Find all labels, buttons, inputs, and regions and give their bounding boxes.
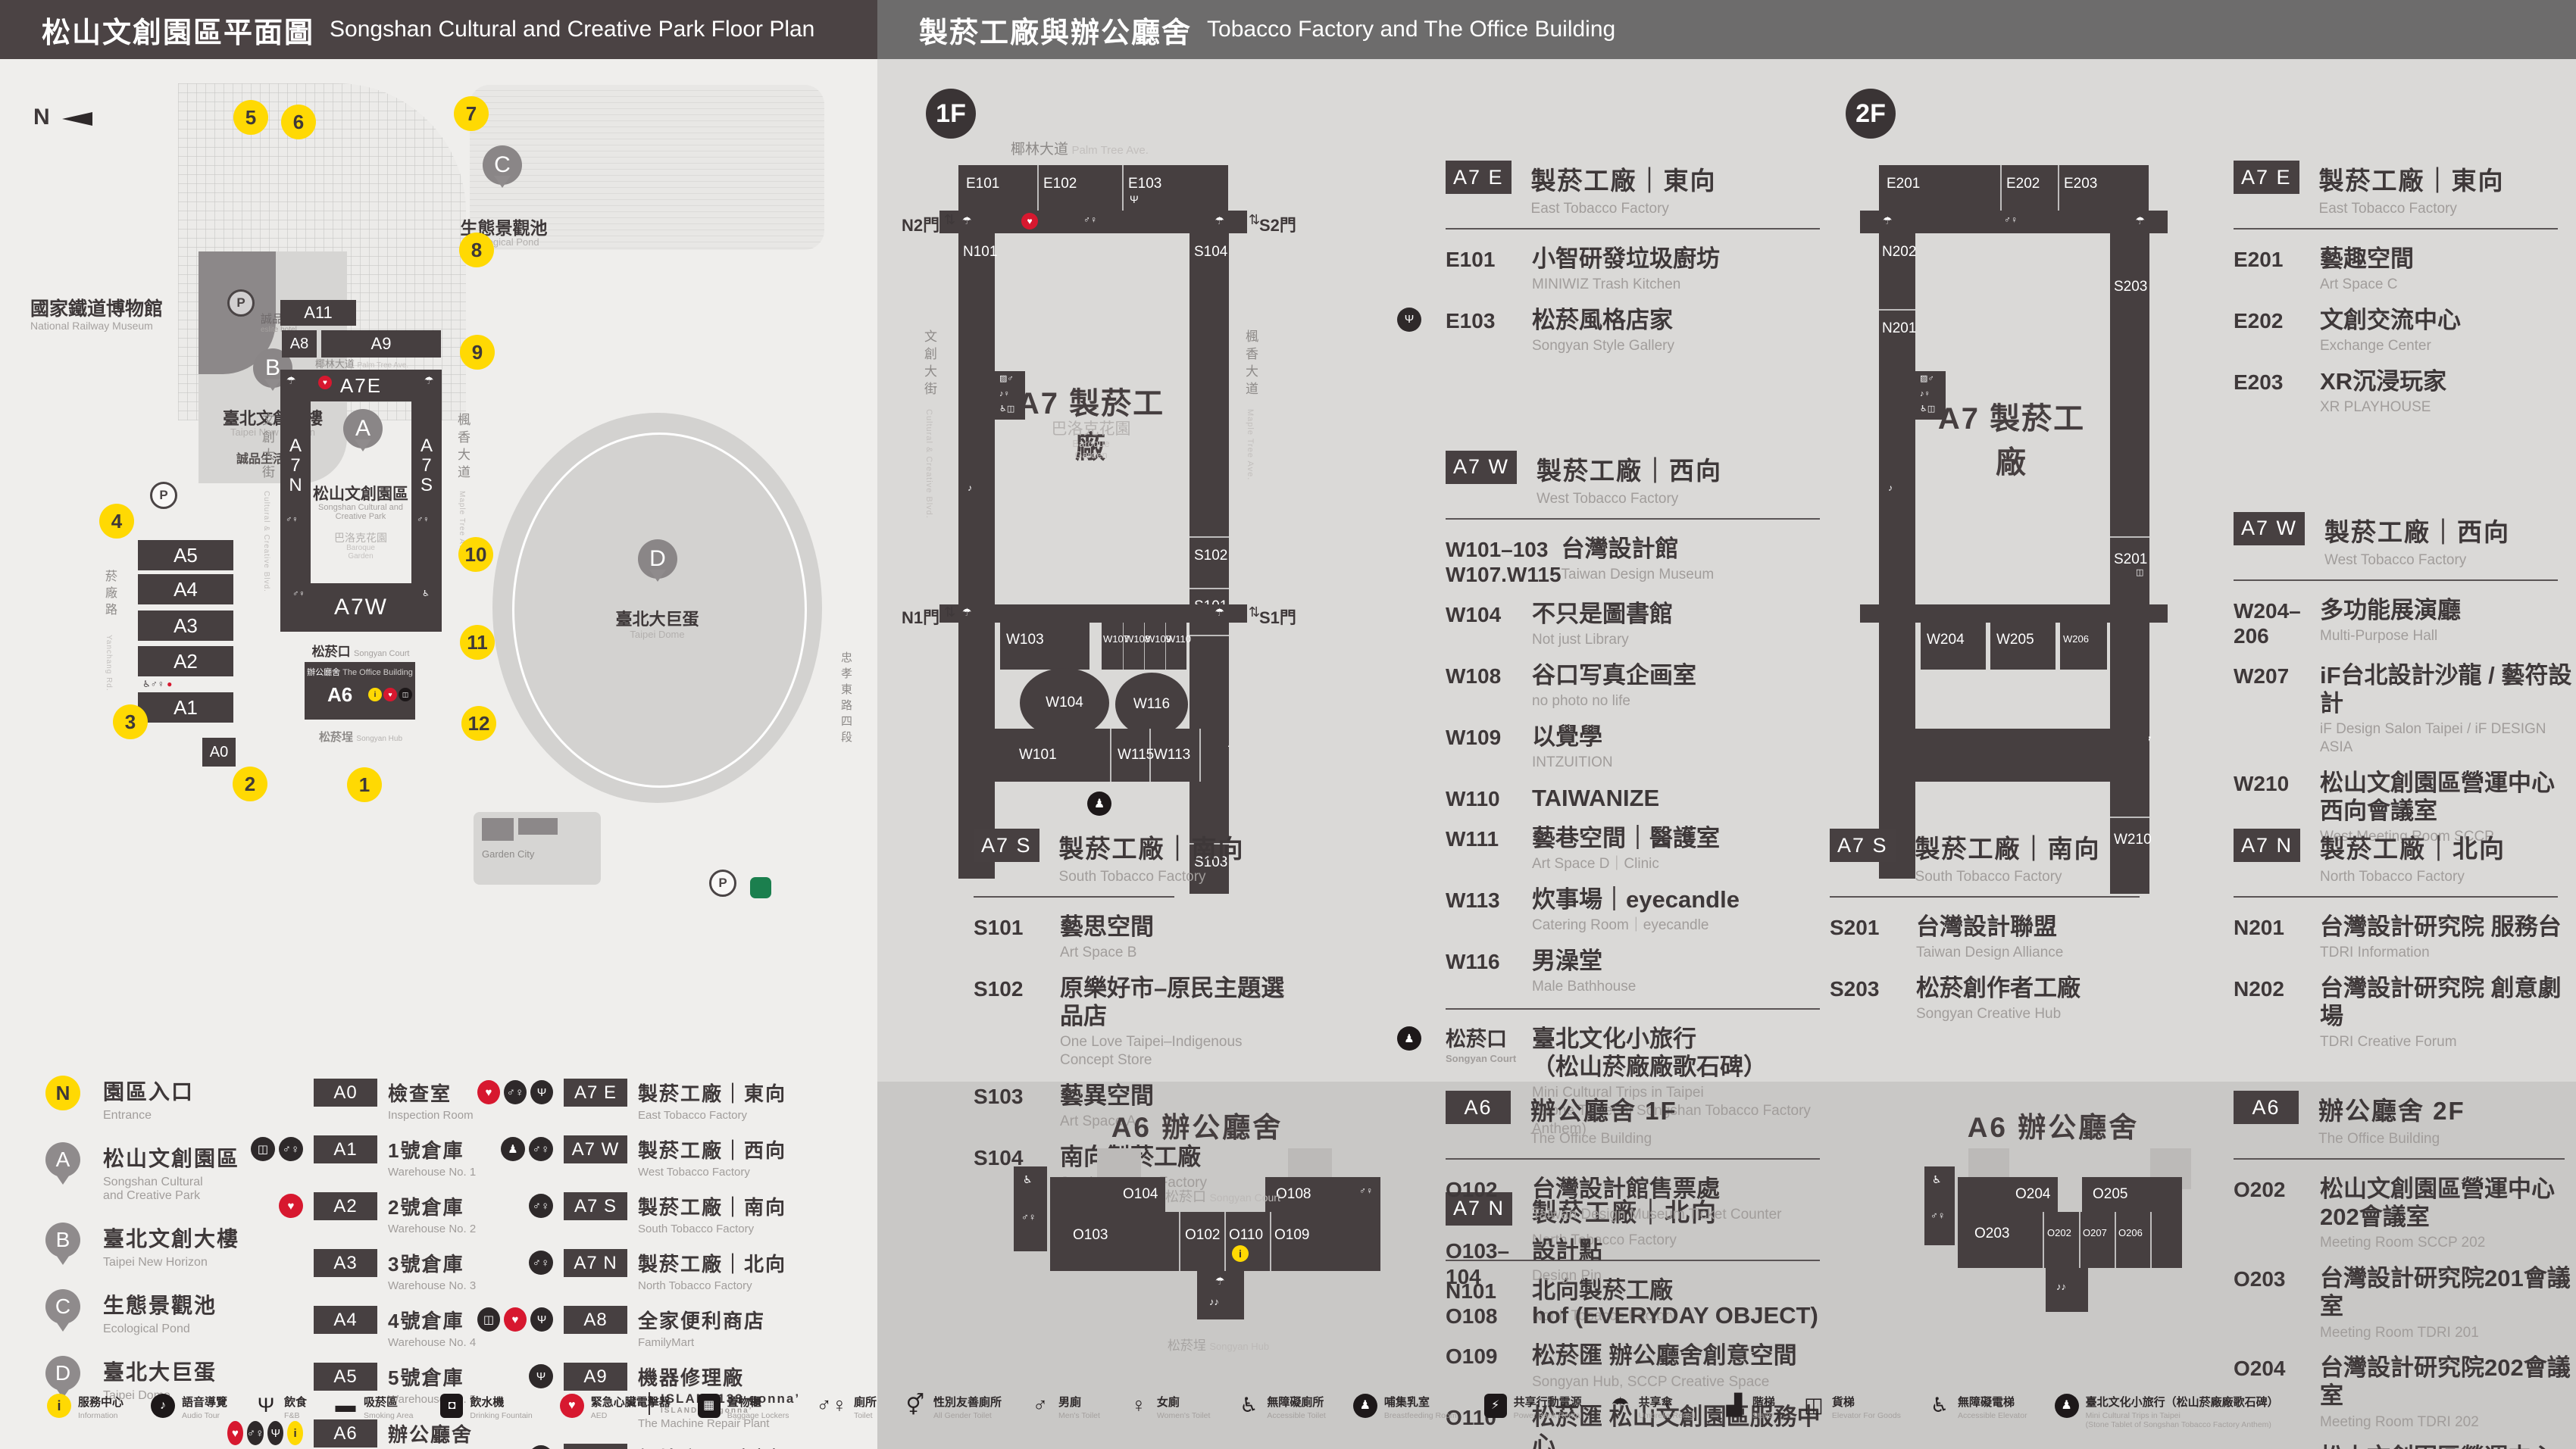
east-wall-2f: S203 S201 ◫ W207 W210 xyxy=(2110,233,2149,894)
row-icons: ♟ xyxy=(1397,1026,1421,1051)
section-title-zh: 製菸工廠｜西向 xyxy=(1537,451,1722,487)
pin-text: 臺北文創大樓 Taipei New Horizon xyxy=(103,1223,239,1269)
room-info: 台灣設計館售票處 Taiwan Design Museum Ticket Cou… xyxy=(1532,1175,1840,1224)
room-code: O102 xyxy=(1446,1175,1532,1224)
west-wall-1f: N101 W102 ♪ xyxy=(958,233,995,879)
building-a7e-label: A7E xyxy=(340,374,382,397)
court-zh: 松菸口 xyxy=(1446,1027,1532,1051)
building-icons: Ψ xyxy=(477,1363,553,1388)
room-name-zh: 松山文創園區營運中心 西向會議室 xyxy=(2320,769,2574,825)
smoking-icon: ▬ xyxy=(334,1394,357,1416)
room-S104: S104 xyxy=(1194,244,1227,261)
goods-icon: ◫ xyxy=(477,1307,500,1332)
room-code: O205 xyxy=(2234,1443,2320,1449)
garden-city-label: Garden City xyxy=(482,848,534,860)
room-name-en: iF Design Salon Taipei / iF DESIGN ASIA xyxy=(2320,720,2574,757)
room-info: 男澡堂 Male Bathhouse xyxy=(1532,947,1840,996)
facility-text: 置物櫃 Baggage Lockers xyxy=(727,1394,789,1420)
facility-legend-item: ♂♀ 廁所 Toilet xyxy=(816,1394,877,1420)
room-name-en: TDRI Creative Forum xyxy=(2320,1033,2574,1051)
section-badge: A7 E xyxy=(2234,161,2299,194)
section-title-en: West Tobacco Factory xyxy=(1537,491,1722,507)
east-wing-2f: E201 E202 E203 xyxy=(1879,165,2149,211)
a7-factory-center-label-2f: A7 製菸工廠 xyxy=(1928,394,2095,482)
a6-1f-south-stem: ☂ ♪♪ xyxy=(1197,1271,1244,1319)
room-name-en: Songyan Style Gallery xyxy=(1532,337,1840,355)
section-badge: A7 E xyxy=(1446,161,1512,194)
building-name-en: East Tobacco Factory xyxy=(638,1109,786,1122)
south-wing-2f xyxy=(1879,729,2149,782)
section-title-zh: 辦公廳舍 2F xyxy=(2318,1091,2465,1127)
section-badge: A6 xyxy=(2234,1091,2299,1124)
building-code-badge: A5 xyxy=(314,1363,377,1391)
hub-zh: 松菸埕 xyxy=(319,731,353,744)
room-block-w206: W206 xyxy=(2060,623,2107,670)
building-name-zh: 製菸工廠｜東向 xyxy=(638,1082,786,1105)
pin-name-zh: 松山文創園區 xyxy=(103,1142,239,1173)
umbrella-icon: ☂ xyxy=(286,374,296,387)
entrance-9: 9 xyxy=(460,335,495,370)
room-name-zh: 炊事場｜eyecandle xyxy=(1532,885,1840,913)
right-header: 製菸工廠與辦公廳舍 Tobacco Factory and The Office… xyxy=(877,0,2576,59)
building-text: 製菸工廠｜西向 West Tobacco Factory xyxy=(638,1135,786,1179)
list-item: O109 松菸匯 辦公廳舍創意空間 Songyan Hub, SCCP Crea… xyxy=(1446,1341,1840,1391)
room-E201: E201 xyxy=(1887,176,1920,192)
room-info: 台灣設計研究院 服務台 TDRI Information xyxy=(2320,913,2574,962)
a6-2f-left-arm: O204 xyxy=(1958,1177,2058,1212)
building-a4-label: A4 xyxy=(174,578,198,601)
east-wall-1f: S104 S102 S101 ◫ W111 S103 xyxy=(1190,233,1229,894)
facility-zh: 緊急心臟電擊器 xyxy=(591,1394,671,1410)
garden-city-building xyxy=(482,818,514,841)
floor-2f-list-right: A7 E 製菸工廠｜東向East Tobacco Factory E201 藝趣… xyxy=(2234,161,2574,858)
toilet-icon: ♂♀ xyxy=(1021,1212,1036,1223)
facility-zh: 性別友善廁所 xyxy=(933,1394,1002,1410)
facility-zh: 臺北文化小旅行（松山菸廠廠歌石碑） xyxy=(2086,1394,2279,1410)
room-info: 台灣設計研究院 創意劇場 TDRI Creative Forum xyxy=(2320,974,2574,1051)
gate-s1: S1門 xyxy=(1259,604,1296,629)
building-icons: ♥ xyxy=(227,1192,303,1218)
facility-legend-item: ▟ 階梯 Stairs xyxy=(1723,1394,1775,1420)
room-info: 多功能展演廳 Multi-Purpose Hall xyxy=(2320,596,2574,649)
floor-2f-list-south: A7 S 製菸工廠｜南向South Tobacco Factory S201 台… xyxy=(1830,829,2156,1035)
room-O203: O203 xyxy=(1974,1226,2009,1242)
facility-text: 共享行動電源 Power Bank Rental xyxy=(1514,1394,1582,1420)
building-a11-label: A11 xyxy=(304,303,333,322)
parking-icon: P xyxy=(227,289,255,317)
entrance-7: 7 xyxy=(454,96,489,131)
room-name-en: XR PLAYHOUSE xyxy=(2320,398,2574,417)
room-N202: N202 xyxy=(1882,244,1916,261)
pin-text: 生態景觀池 Ecological Pond xyxy=(103,1289,217,1336)
room-name-zh: 松山文創園區營運中心202會議室 xyxy=(2320,1175,2576,1231)
room-name-en: TDRI Information xyxy=(2320,944,2574,962)
facility-en: AED xyxy=(591,1411,671,1420)
section-a7w-2f: A7 W 製菸工廠｜西向West Tobacco Factory xyxy=(2234,512,2574,569)
building-a8-label: A8 xyxy=(290,336,308,352)
room-name-zh: 多功能展演廳 xyxy=(2320,596,2574,624)
accessible-icon: ♿ xyxy=(1932,1174,1942,1185)
room-info: 文創交流中心 Exchange Center xyxy=(2320,306,2574,355)
room-info: 松菸創作者工廠 Songyan Creative Hub xyxy=(1916,974,2156,1023)
entrance-4: 4 xyxy=(99,504,134,539)
building-text: 4號倉庫 Warehouse No. 4 xyxy=(388,1306,476,1349)
building-code-badge: A0 xyxy=(314,1079,377,1107)
row-icons: Ψ xyxy=(1397,308,1421,332)
room-code: E103 xyxy=(1446,306,1532,355)
walker-icon: ♟ xyxy=(501,1137,525,1161)
building-icons: ◫♂♀ xyxy=(227,1135,303,1161)
room-S201: S201 xyxy=(2114,551,2147,568)
section-title-en: South Tobacco Factory xyxy=(1915,869,2101,885)
umbrella-icon: ☂ xyxy=(1215,215,1224,226)
entrance-12: 12 xyxy=(461,706,496,741)
building-text: 檢查室 Inspection Room xyxy=(388,1079,474,1122)
building-icons: ♂♀ xyxy=(477,1249,553,1275)
rooms-a7e-1f: E101 小智研發垃圾廚坊 MINIWIZ Trash Kitchen Ψ E1… xyxy=(1446,245,1840,355)
room-O110: O110 xyxy=(1229,1227,1263,1244)
building-name-en: Warehouse No. 4 xyxy=(388,1336,476,1349)
building-icons: ♟♂♀ xyxy=(477,1135,553,1161)
room-info: 藝巷空間｜醫護室 Art Space D｜Clinic xyxy=(1532,824,1840,873)
room-info: 台灣設計聯盟 Taiwan Design Alliance xyxy=(1916,913,2156,962)
room-info: 台灣設計研究院202會議室 Meeting Room TDRI 202 xyxy=(2320,1354,2576,1431)
building-name-en: Warehouse No. 2 xyxy=(388,1223,476,1235)
building-name-zh: 5號倉庫 xyxy=(388,1366,464,1389)
building-code-badge: A3 xyxy=(314,1249,377,1277)
facility-en: Men's Toilet xyxy=(1058,1411,1100,1420)
section-a7s-1f: A7 S 製菸工廠｜南向South Tobacco Factory xyxy=(974,829,1292,885)
room-code: E202 xyxy=(2234,306,2320,355)
building-name-zh: 1號倉庫 xyxy=(388,1139,464,1162)
accessible-icon: ♿ xyxy=(1023,1174,1033,1185)
room-name-en: INTZUITION xyxy=(1532,754,1840,772)
audio-icon: ♪♪ xyxy=(1209,1297,1219,1307)
section-a6-2f: A6 辦公廳舍 2FThe Office Building xyxy=(2234,1091,2576,1148)
building-text: 2號倉庫 Warehouse No. 2 xyxy=(388,1192,476,1235)
facility-text: 哺集乳室 Breastfeeding Room xyxy=(1384,1394,1457,1420)
a6-1f-right-arm: O108 ♂♀ xyxy=(1265,1177,1380,1212)
facility-en: Power Bank Rental xyxy=(1514,1411,1582,1420)
room-N201: N201 xyxy=(1882,320,1916,337)
room-name-en: Exchange Center xyxy=(2320,337,2574,355)
section-title-en: East Tobacco Factory xyxy=(1531,201,1717,217)
room-name-zh: 松菸匯 辦公廳舍創意空間 xyxy=(1532,1341,1840,1369)
room-code: N201 xyxy=(2234,913,2320,962)
room-E202: E202 xyxy=(2006,176,2040,192)
pin-letter: D xyxy=(55,1361,70,1385)
building-name-en: North Tobacco Factory xyxy=(638,1279,786,1292)
facility-legend-item: Ψ 飲食 F&B xyxy=(255,1394,307,1420)
room-W110: W110 xyxy=(1166,633,1191,645)
female-icon: ♀ xyxy=(1127,1394,1150,1416)
a6-2f-list: A6 辦公廳舍 2FThe Office Building O202 松山文創園… xyxy=(2234,1091,2576,1449)
room-O109: O109 xyxy=(1274,1227,1309,1244)
room-code: O109 xyxy=(1446,1341,1532,1391)
section-title-en: East Tobacco Factory xyxy=(2319,201,2505,217)
room-info: 原樂好市–原民主題選品店 One Love Taipei–Indigenous … xyxy=(1060,974,1292,1070)
section-a6-1f: A6 辦公廳舍 1FThe Office Building xyxy=(1446,1091,1840,1148)
building-text: 鍋爐房豆留文青CAMA COFFEE ROASTERS Boiler Room xyxy=(638,1444,854,1449)
section-badge: A7 W xyxy=(2234,512,2305,545)
mrt-station-icon xyxy=(750,877,771,898)
room-code: O108 xyxy=(1446,1301,1532,1329)
room-info: 設計點 Design Pin xyxy=(1532,1236,1840,1289)
legend-building-row: A3 3號倉庫 Warehouse No. 3 xyxy=(227,1249,477,1292)
aed-map-icon: ♥ xyxy=(318,376,332,389)
restaurant-icon: Ψ xyxy=(530,1080,553,1104)
court-zh: 松菸口 xyxy=(312,645,351,659)
building-a9: A9 xyxy=(321,330,441,358)
goods-icon: ◫ xyxy=(251,1137,275,1161)
building-name-zh: 製菸工廠｜西向 xyxy=(638,1139,786,1162)
building-a1: A1 xyxy=(138,692,233,723)
building-icons xyxy=(227,1249,303,1251)
entrance-6: 6 xyxy=(281,105,316,139)
section-title-zh: 製菸工廠｜東向 xyxy=(2319,161,2505,197)
building-a9-label: A9 xyxy=(371,334,392,353)
hub-label: 松菸埕 Songyan Hub xyxy=(285,729,436,745)
facility-en: Elevator For Goods xyxy=(1832,1411,1901,1420)
map-pin-icon: A xyxy=(45,1142,80,1177)
legend-building-row: ♥♂♀Ψ A7 E 製菸工廠｜東向 East Tobacco Factory xyxy=(477,1079,879,1122)
dome-pin-letter: D xyxy=(649,546,666,572)
building-code-badge: A7 N xyxy=(564,1249,627,1277)
section-title-zh: 製菸工廠｜南向 xyxy=(1915,829,2101,865)
room-name-zh: 藝思空間 xyxy=(1060,913,1292,941)
room-name-en: One Love Taipei–Indigenous Concept Store xyxy=(1060,1033,1292,1070)
goods-elevator-icon: ◫ xyxy=(2136,568,2143,577)
entrance-en: Entrance xyxy=(103,1109,194,1123)
facility-text: 飲食 F&B xyxy=(284,1394,307,1420)
building-icons: ♂♀ xyxy=(477,1192,553,1218)
allgender-icon: ⚥ xyxy=(904,1394,927,1416)
list-item: W108 谷口写真企画室 no photo no life xyxy=(1446,661,1840,710)
room-name-en: Art Space B xyxy=(1060,944,1292,962)
section-title-en: West Tobacco Factory xyxy=(2324,552,2510,569)
baroque-garden-zh: 巴洛克花園 xyxy=(285,530,436,545)
room-O207: O207 xyxy=(2083,1227,2107,1238)
building-name-line: 全家便利商店 xyxy=(638,1306,765,1334)
info-icon: i xyxy=(47,1394,71,1418)
section-title-zh: 製菸工廠｜西向 xyxy=(2324,512,2510,548)
facility-legend-item: ▬ 吸菸區 Smoking Area xyxy=(334,1394,413,1420)
facility-en: Mini Cultural Trips in Taipei (Stone Tab… xyxy=(2086,1411,2279,1429)
facility-text: 無障礙電梯 Accessible Elevator xyxy=(1958,1394,2027,1420)
room-name-en: Meeting Room TDRI 201 xyxy=(2320,1324,2576,1342)
facility-legend-item: ▦ 置物櫃 Baggage Lockers xyxy=(698,1394,789,1420)
building-a6: 辦公廳舍 The Office Building A6 i ♥ ◫ xyxy=(305,662,415,720)
room-name-en: Songyan Creative Hub xyxy=(1916,1005,2156,1023)
building-a2-label: A2 xyxy=(174,650,198,673)
umbrella-icon: ☂ xyxy=(962,607,972,618)
walker-icon: ♟ xyxy=(2055,1394,2079,1418)
legend-building-row: ♂♀ A7 S 製菸工廠｜南向 South Tobacco Factory xyxy=(477,1192,879,1235)
maple-ave-1f-zh: 楓香大道 xyxy=(1241,329,1260,399)
facility-zh: 飲食 xyxy=(284,1394,307,1410)
list-item: O202 松山文創園區營運中心202會議室 Meeting Room SCCP … xyxy=(2234,1175,2576,1252)
facility-text: 緊急心臟電擊器 AED xyxy=(591,1394,671,1420)
room-name-zh: 不只是圖書館 xyxy=(1532,600,1840,628)
rooms-a7s-2f: S201 台灣設計聯盟 Taiwan Design Alliance S203 … xyxy=(1830,913,2156,1023)
facility-legend-item: ◘ 飲水機 Drinking Fountain xyxy=(440,1394,532,1420)
list-item: E203 XR沉浸玩家 XR PLAYHOUSE xyxy=(2234,367,2574,417)
facility-legend-item: ◫ 貨梯 Elevator For Goods xyxy=(1802,1394,1901,1420)
room-code: S101 xyxy=(974,913,1060,962)
legend-building-row: Ψ A10 鍋爐房豆留文青CAMA COFFEE ROASTERS Boiler… xyxy=(477,1444,879,1449)
section-a7s-2f: A7 S 製菸工廠｜南向South Tobacco Factory xyxy=(1830,829,2156,885)
floor-plan-poster: 松山文創園區平面圖 Songshan Cultural and Creative… xyxy=(0,0,2576,1449)
room-W205: W205 xyxy=(1996,632,2034,648)
room-info: 不只是圖書館 Not just Library xyxy=(1532,600,1840,649)
facility-legend-item: ♿ 無障礙廁所 Accessible Toilet xyxy=(1237,1394,1325,1420)
room-name-en: Taiwan Design Alliance xyxy=(1916,944,2156,962)
building-name-line: 製菸工廠｜東向 xyxy=(638,1079,786,1107)
list-item: W204–206 多功能展演廳 Multi-Purpose Hall xyxy=(2234,596,2574,649)
entrance-8: 8 xyxy=(459,233,494,267)
facility-zh: 廁所 xyxy=(854,1394,877,1410)
court-item-zh: 臺北文化小旅行 （松山菸廠廠歌石碑） xyxy=(1532,1025,1840,1081)
umbrella-icon: ☂ xyxy=(2135,215,2145,226)
male-icon: ♂ xyxy=(1029,1394,1052,1416)
building-icons xyxy=(227,1306,303,1307)
aed-icon: ♥ xyxy=(383,688,397,701)
toilet-icon: ♂♀ xyxy=(529,1251,553,1275)
right-header-title-zh: 製菸工廠與辦公廳舍 xyxy=(919,9,1192,51)
cc-blvd-1f-zh: 文創大街 xyxy=(920,329,939,399)
building-name-line: 檢查室 xyxy=(388,1079,474,1107)
map-pin-icon: D xyxy=(45,1356,80,1391)
building-icons: ◫♥Ψ xyxy=(477,1306,553,1332)
rooms-a7e-2f: E201 藝趣空間 Art Space C E202 文創交流中心 Exchan… xyxy=(2234,245,2574,417)
room-info: 松菸匯 辦公廳舍創意空間 Songyan Hub, SCCP Creative … xyxy=(1532,1341,1840,1391)
a6-1f-west-service: ♿ ♂♀ xyxy=(1014,1166,1047,1251)
room-name-en: Meeting Room SCCP 202 xyxy=(2320,1234,2576,1252)
south-corridor-1f: ☂ ☂ xyxy=(939,604,1247,623)
facility-zh: 哺集乳室 xyxy=(1384,1394,1457,1410)
room-code: W101–103 W107.W115 xyxy=(1446,535,1562,588)
south-corridor-2f xyxy=(1860,604,2168,623)
room-code: O103–104 xyxy=(1446,1236,1532,1289)
list-item: O203 台灣設計研究院201會議室 Meeting Room TDRI 201 xyxy=(2234,1264,2576,1341)
audio-icon: ♪ xyxy=(1888,483,1893,493)
room-name-zh: 小智研發垃圾廚坊 xyxy=(1532,245,1840,273)
list-item: S102 原樂好市–原民主題選品店 One Love Taipei–Indige… xyxy=(974,974,1292,1070)
warehouse-icons: ♿♂♀ ● xyxy=(142,679,172,689)
building-a8: A8 xyxy=(282,330,317,358)
building-text: 製菸工廠｜北向 North Tobacco Factory xyxy=(638,1249,786,1292)
toilet-icon: ♂♀ xyxy=(1930,1210,1946,1221)
palm-ave-label-1f: 椰林大道 Palm Tree Ave. xyxy=(981,138,1178,158)
room-name-en: Multi-Purpose Hall xyxy=(2320,627,2574,645)
section-a7e-2f: A7 E 製菸工廠｜東向East Tobacco Factory xyxy=(2234,161,2574,217)
toilet-icon: ♂♀ xyxy=(1083,215,1097,225)
floor-2f-list-north: A7 N 製菸工廠｜北向North Tobacco Factory N201 台… xyxy=(2234,829,2574,1063)
room-name-zh: XR沉浸玩家 xyxy=(2320,367,2574,395)
palm-ave-label-left: 椰林大道 Palm Tree Ave. xyxy=(273,356,451,370)
list-item: W207 iF台北設計沙龍 / 藝符設計 iF Design Salon Tai… xyxy=(2234,661,2574,757)
restaurant-icon: Ψ xyxy=(1397,308,1421,332)
room-name-en: MINIWIZ Trash Kitchen xyxy=(1532,276,1840,294)
list-item: S201 台灣設計聯盟 Taiwan Design Alliance xyxy=(1830,913,2156,962)
room-block-w107-110: W107 W108 W109 W110 xyxy=(1102,623,1186,670)
building-code-badge: A7 E xyxy=(564,1079,627,1107)
facility-en: Information xyxy=(78,1411,123,1420)
facility-zh: 置物櫃 xyxy=(727,1394,789,1410)
south-wing-1f: W101 W115 W113 xyxy=(958,729,1228,782)
building-name-line: 5號倉庫 xyxy=(388,1363,476,1391)
restaurant-icon: Ψ xyxy=(255,1394,277,1416)
building-icons: Ψ xyxy=(477,1444,553,1449)
section-title-zh: 製菸工廠｜北向 xyxy=(2320,829,2506,865)
facility-legend-strip: i 服務中心 Information ♪ 語音導覽 Audio Tour Ψ 飲… xyxy=(47,1394,2279,1429)
room-info: 台灣設計研究院201會議室 Meeting Room TDRI 201 xyxy=(2320,1264,2576,1341)
building-name-zh: 機器修理廠 xyxy=(638,1366,744,1389)
room-info: 谷口写真企画室 no photo no life xyxy=(1532,661,1840,710)
legend-building-row: ♂♀ A7 N 製菸工廠｜北向 North Tobacco Factory xyxy=(477,1249,879,1292)
room-code: W108 xyxy=(1446,661,1532,710)
restaurant-icon: Ψ xyxy=(530,1307,553,1332)
list-item: O102 台灣設計館售票處 Taiwan Design Museum Ticke… xyxy=(1446,1175,1840,1224)
north-label: N xyxy=(33,105,50,130)
room-W113: W113 xyxy=(1154,747,1190,764)
room-info: hof (EVERYDAY OBJECT) xyxy=(1532,1301,1840,1329)
power-icon: ⚡ xyxy=(1484,1394,1507,1418)
room-name-zh: 藝趣空間 xyxy=(2320,245,2574,273)
baroque-garden-en: Baroque Garden xyxy=(285,544,436,561)
building-name-line: 鍋爐房豆留文青CAMA COFFEE ROASTERS xyxy=(638,1444,854,1449)
facility-zh: 共享傘 xyxy=(1639,1394,1696,1410)
facility-zh: 服務中心 xyxy=(78,1394,123,1410)
building-text: 製菸工廠｜南向 South Tobacco Factory xyxy=(638,1192,786,1235)
room-code: W204–206 xyxy=(2234,596,2320,649)
building-text: 1號倉庫 Warehouse No. 1 xyxy=(388,1135,476,1179)
building-a1-label: A1 xyxy=(174,696,198,719)
building-a4: A4 xyxy=(138,574,233,604)
facility-en: Stairs xyxy=(1752,1411,1775,1420)
room-block-w204: W204 xyxy=(1921,623,1986,670)
building-name-zh: 製菸工廠｜南向 xyxy=(638,1196,786,1219)
park-label-zh: 松山文創園區 xyxy=(285,482,436,504)
facility-zh: 吸菸區 xyxy=(364,1394,413,1410)
list-item: N202 台灣設計研究院 創意劇場 TDRI Creative Forum xyxy=(2234,974,2574,1051)
umbrella-icon: ☂ xyxy=(424,374,434,387)
building-a0: A0 xyxy=(202,738,236,767)
locker-icon: ▦ xyxy=(698,1394,721,1418)
room-code: S103 xyxy=(974,1082,1060,1131)
park-pin-letter: A xyxy=(355,416,370,442)
room-name-zh: 松菸風格店家 xyxy=(1532,306,1840,334)
gate-s2: S2門 xyxy=(1259,212,1296,236)
room-info: 藝趣空間 Art Space C xyxy=(2320,245,2574,294)
list-item: O205 松山文創園區營運中心201會議室 Meeting Room SCCP … xyxy=(2234,1443,2576,1449)
building-text: 製菸工廠｜東向 East Tobacco Factory xyxy=(638,1079,786,1122)
room-E101: E101 xyxy=(966,176,999,192)
pin-letter: A xyxy=(56,1148,70,1172)
north-corridor-2f: ☂ ☂ ♂♀ xyxy=(1860,211,2168,233)
list-item: Ψ E103 松菸風格店家 Songyan Style Gallery xyxy=(1446,306,1840,355)
list-item: W110 TAIWANIZE xyxy=(1446,784,1840,812)
pin-name-en: Songshan Cultural and Creative Park xyxy=(103,1176,239,1203)
section-a7n-2f: A7 N 製菸工廠｜北向North Tobacco Factory xyxy=(2234,829,2574,885)
list-item: E101 小智研發垃圾廚坊 MINIWIZ Trash Kitchen xyxy=(1446,245,1840,294)
audio-icon: ♪ xyxy=(968,483,972,493)
aed-map-icon: ♥ xyxy=(1021,213,1038,230)
railway-museum-label-en: National Railway Museum xyxy=(30,320,153,332)
stairs-icon: ▟ xyxy=(1723,1394,1746,1416)
facility-text: 廁所 Toilet xyxy=(854,1394,877,1420)
facility-zh: 階梯 xyxy=(1752,1394,1775,1410)
